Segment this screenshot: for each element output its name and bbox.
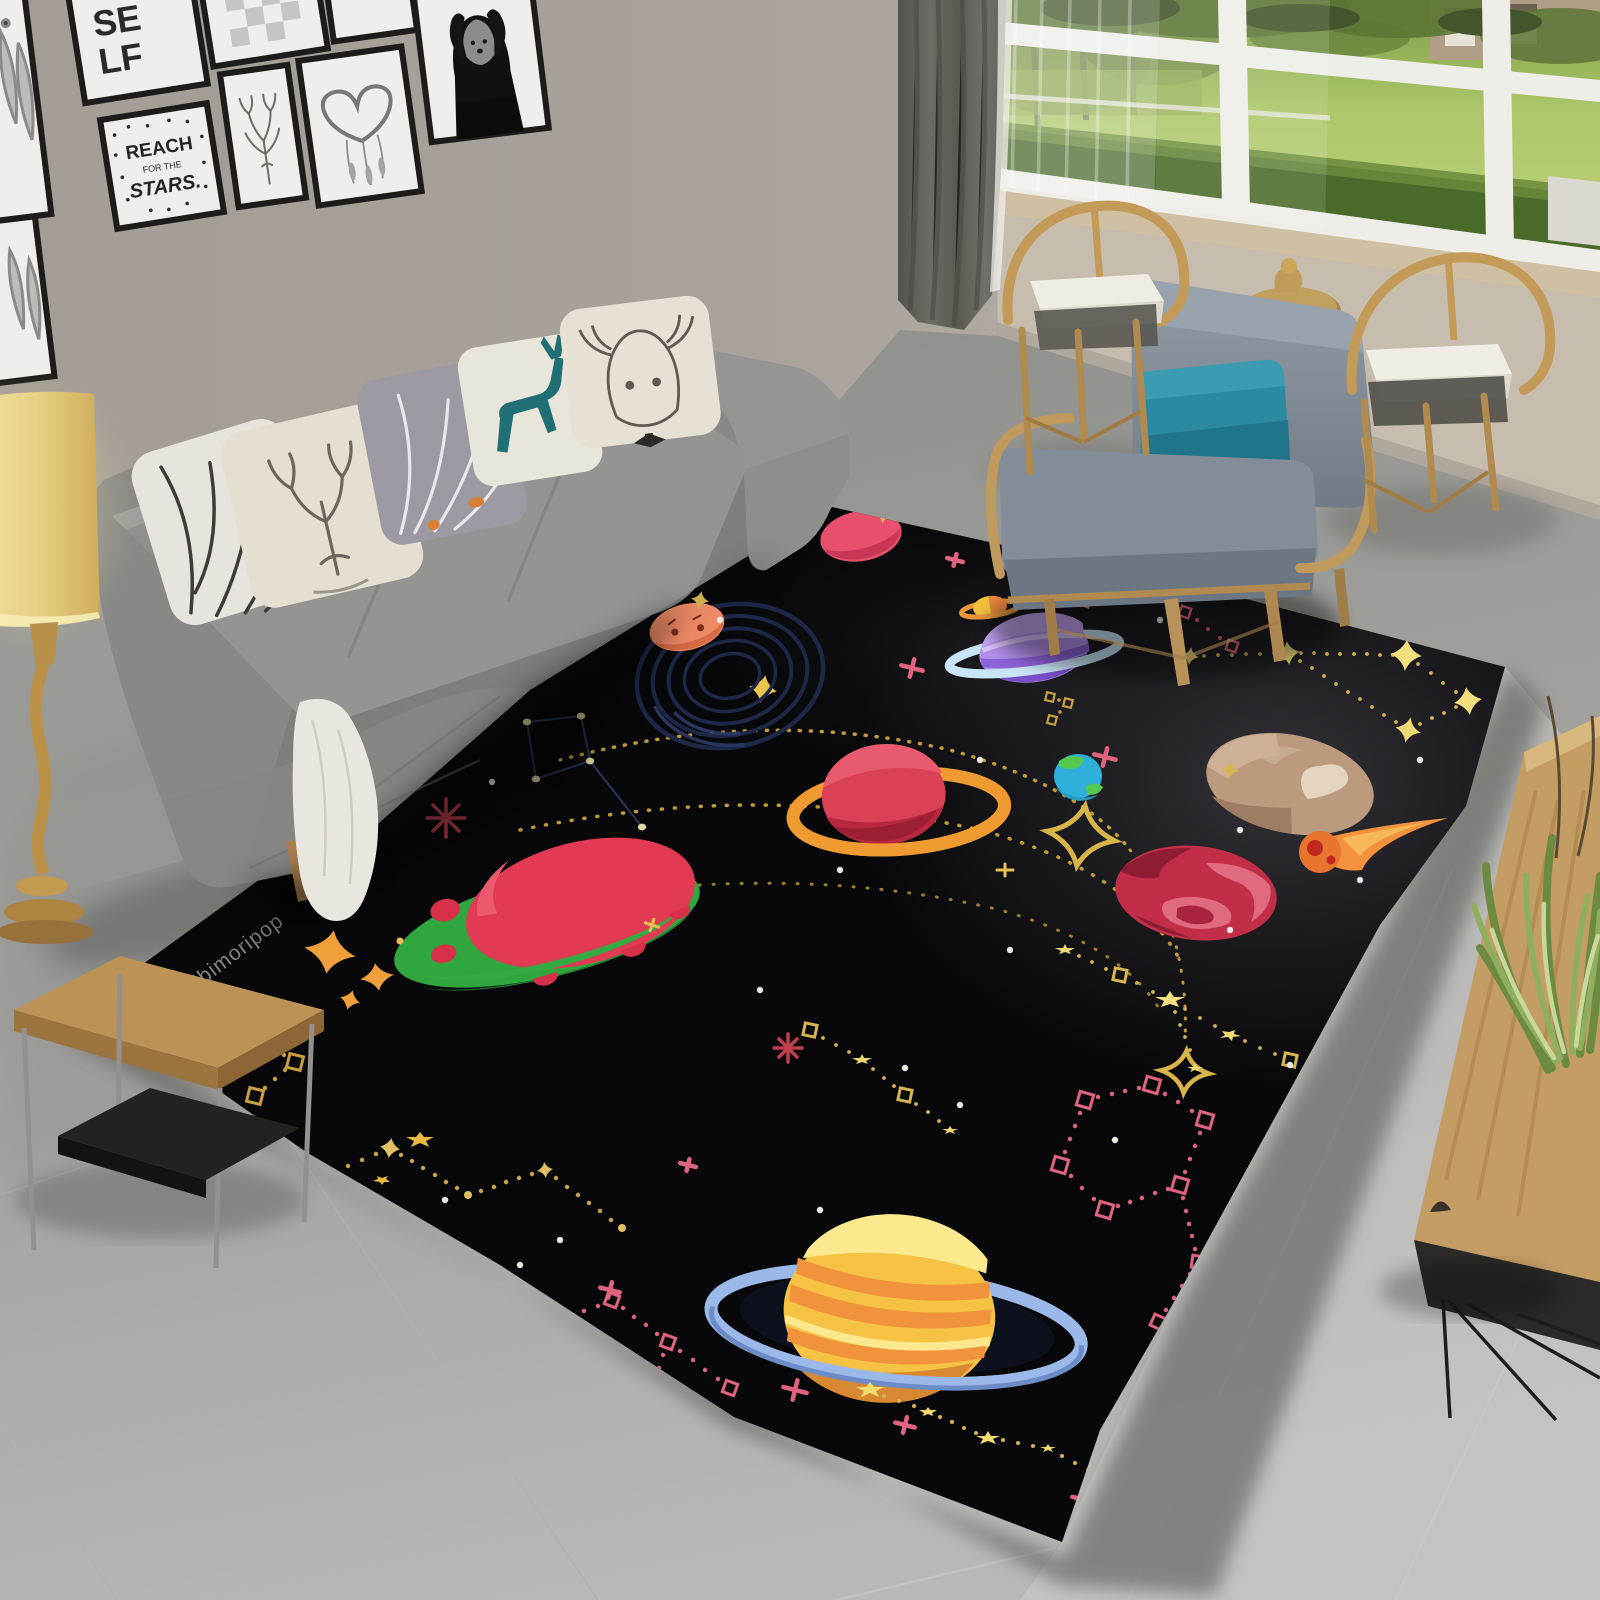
svg-text:LF: LF [96, 35, 146, 82]
